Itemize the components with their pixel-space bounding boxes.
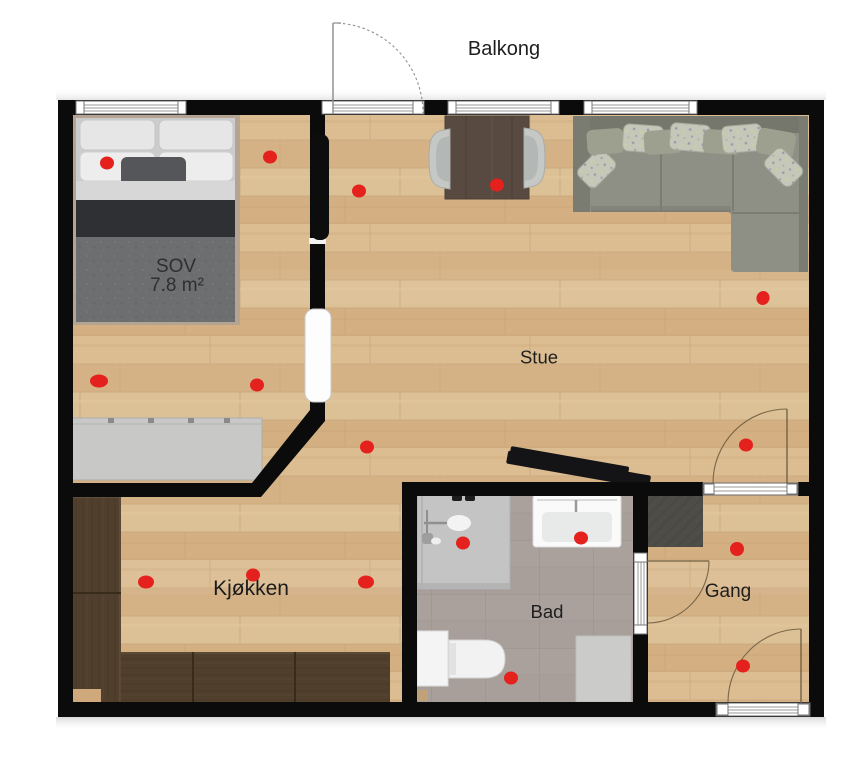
svg-text:7.8 m²: 7.8 m² — [150, 275, 204, 296]
svg-text:SOV: SOV — [156, 256, 196, 277]
svg-text:Bad: Bad — [531, 601, 564, 622]
svg-text:Gang: Gang — [705, 581, 751, 602]
svg-text:Balkong: Balkong — [468, 38, 540, 60]
svg-text:Stue: Stue — [520, 347, 558, 368]
